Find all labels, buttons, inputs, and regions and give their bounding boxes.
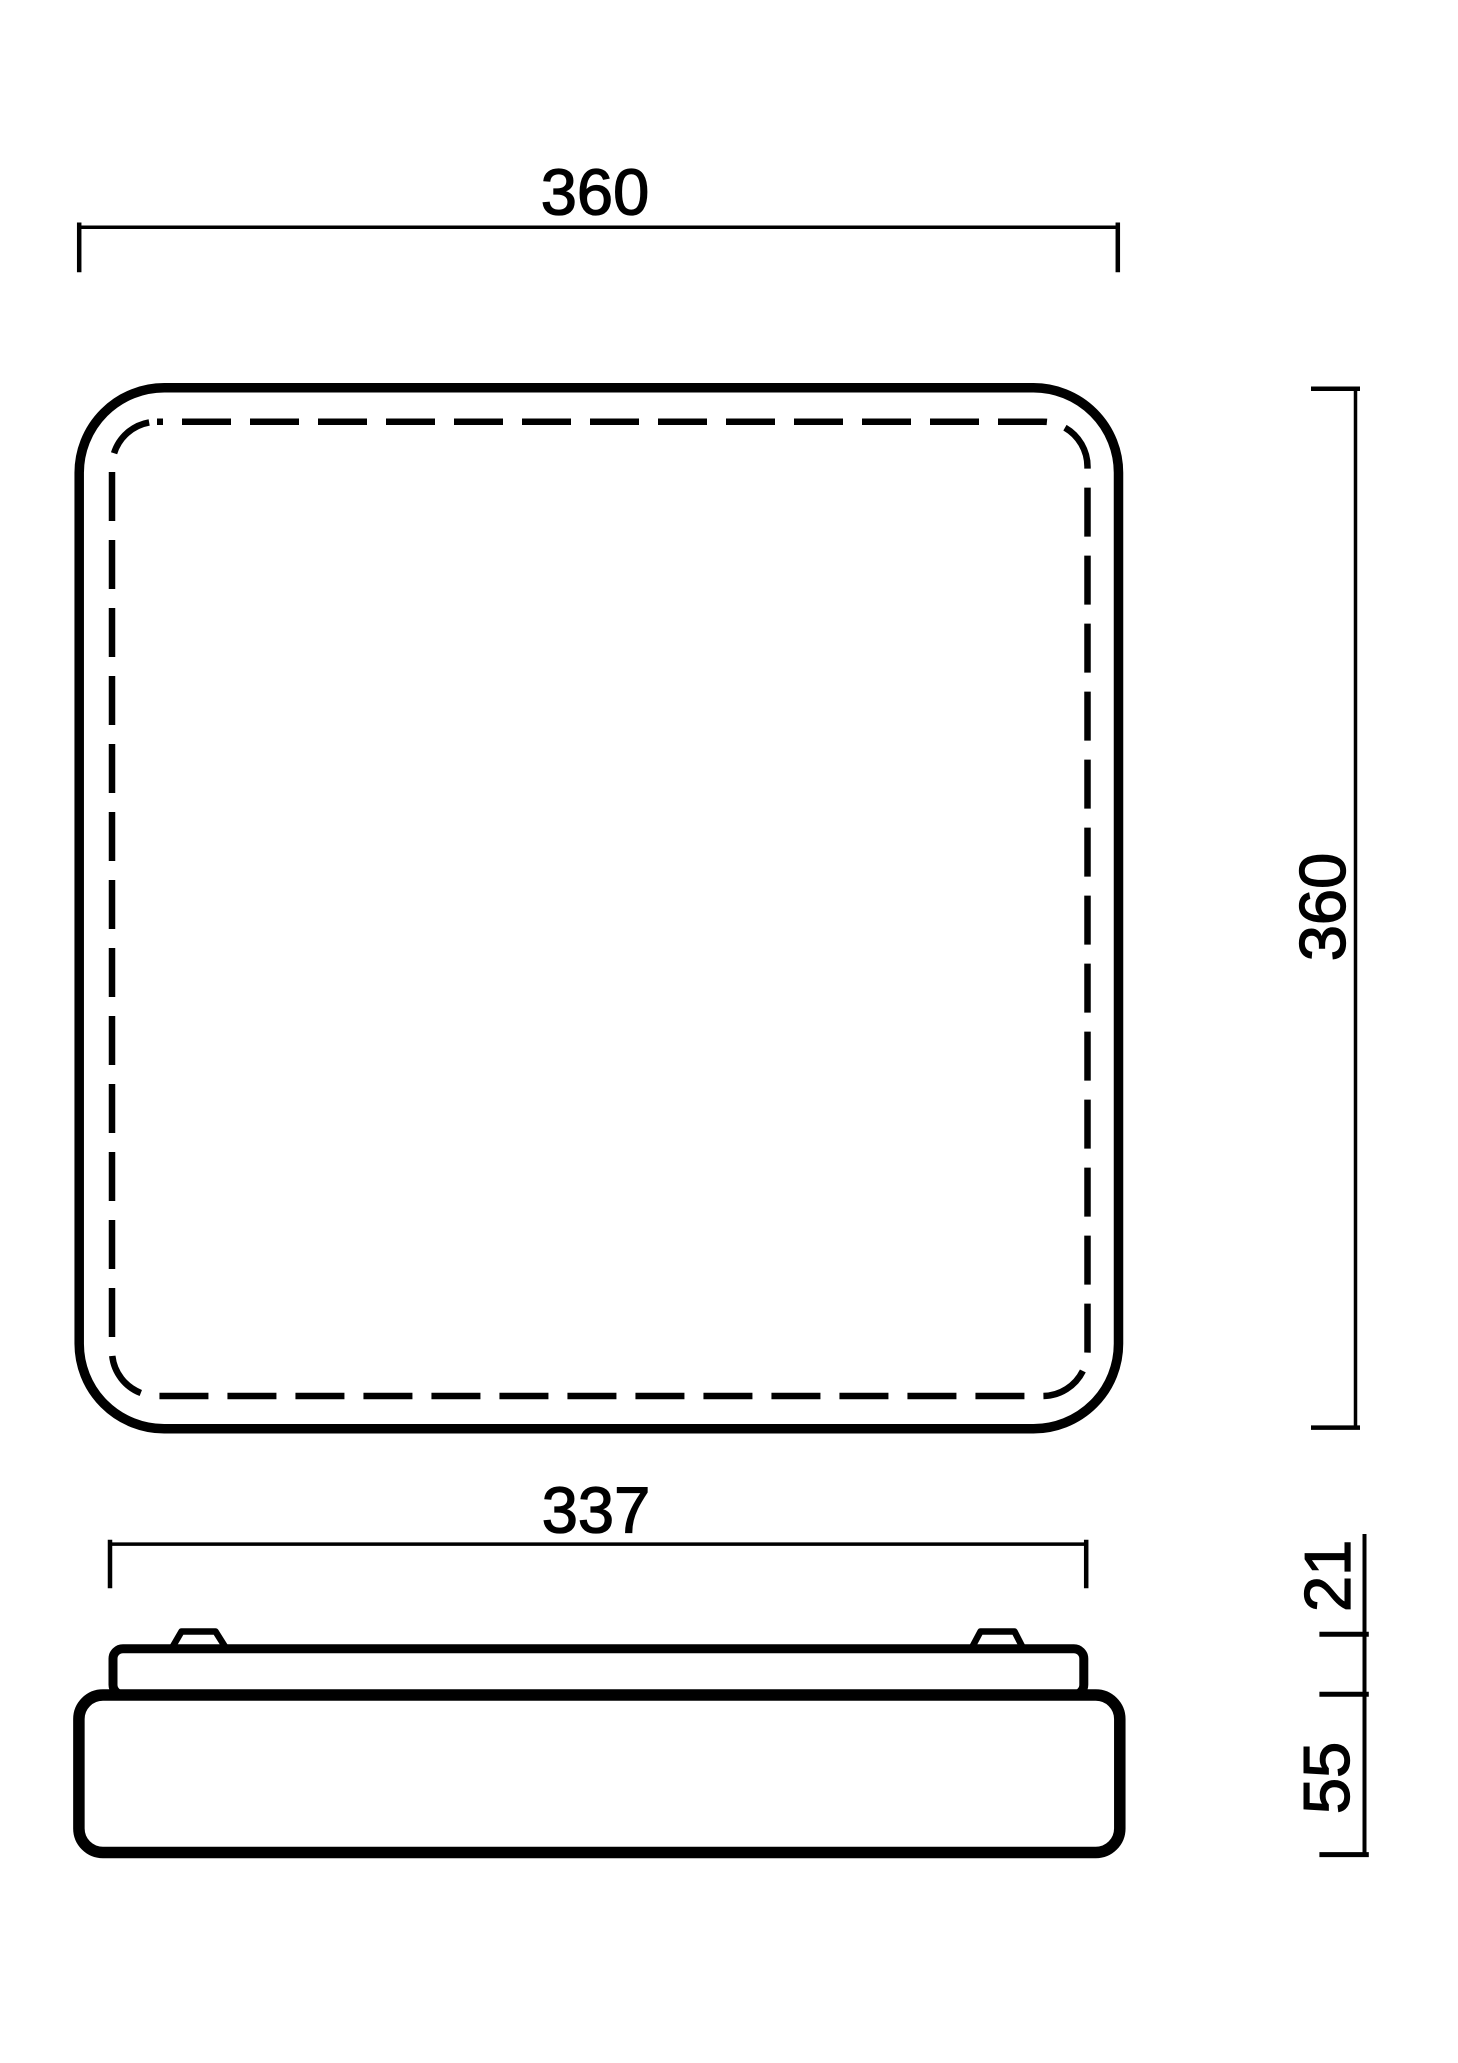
svg-text:21: 21	[1291, 1540, 1364, 1612]
svg-text:55: 55	[1290, 1742, 1363, 1814]
svg-text:337: 337	[542, 1474, 650, 1547]
svg-text:360: 360	[1286, 853, 1359, 961]
svg-text:360: 360	[541, 156, 649, 229]
